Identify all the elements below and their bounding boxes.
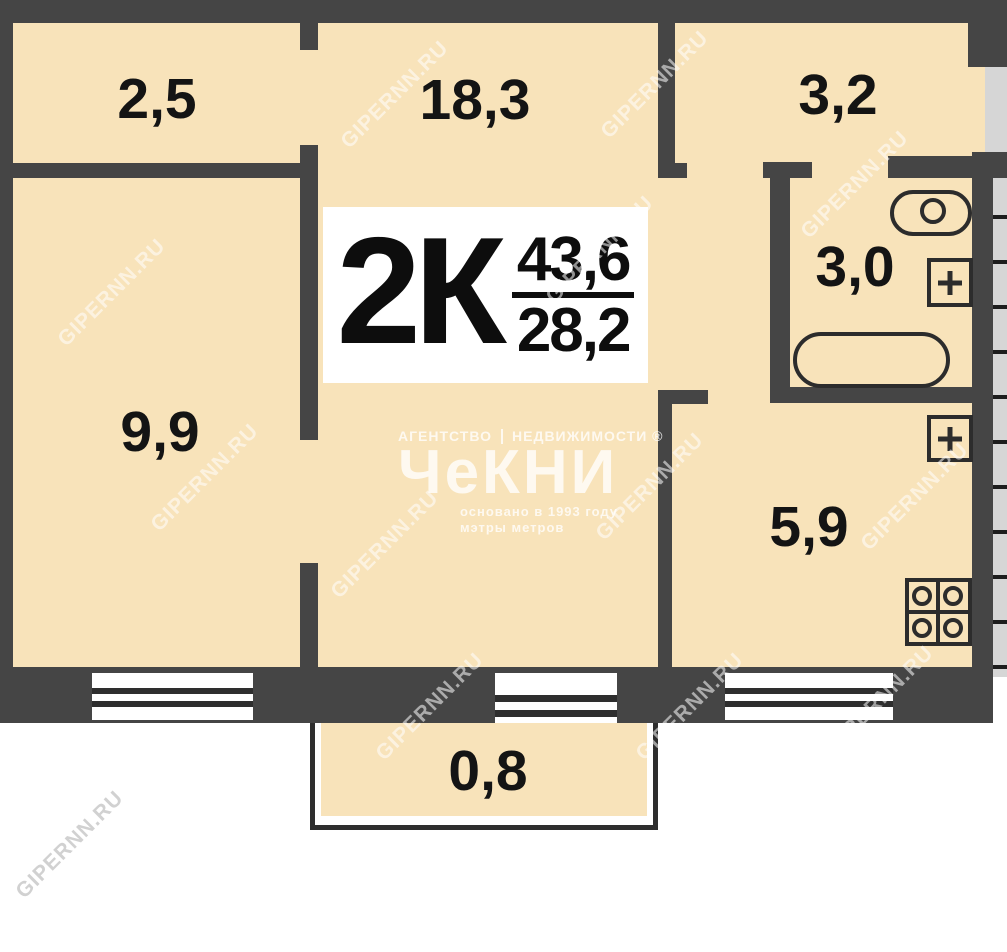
wall-bedroom-living-upper	[300, 145, 318, 440]
stove-icon	[905, 578, 972, 646]
living-area-value: 28,2	[512, 298, 635, 363]
wall-left	[0, 14, 13, 723]
balcony-area-label: 0,8	[448, 738, 527, 804]
storage-area-label: 2,5	[117, 66, 196, 132]
wall-living-hallway-foot	[658, 163, 687, 178]
wall-living-hallway	[658, 23, 675, 178]
agency-slogan-line: мэтры метров	[460, 520, 663, 536]
bedroom-area-label: 9,9	[120, 399, 199, 465]
wall-bathroom-left	[770, 178, 790, 390]
bathroom-area-label: 3,0	[815, 234, 894, 300]
burner-icon	[912, 586, 932, 606]
hallway-area-label: 3,2	[798, 62, 877, 128]
wall-right-block	[972, 152, 1007, 178]
stove-divider	[936, 582, 940, 642]
bathtub-icon	[793, 332, 950, 388]
site-watermark: GIPERNN.RU	[11, 786, 128, 903]
wall-bathroom-bottom	[770, 387, 975, 403]
burner-icon	[943, 618, 963, 638]
window-frame-line	[92, 701, 253, 707]
bathroom-sink-icon	[927, 258, 973, 307]
burner-icon	[943, 586, 963, 606]
window-frame-line	[92, 688, 253, 694]
balcony-door-window	[495, 673, 617, 725]
wall-hallway-bathroom-right	[888, 156, 972, 178]
toilet-icon	[890, 190, 972, 236]
window-frame-line	[495, 695, 617, 702]
floor-plan: 2,5 18,3 3,2 9,9 3,0 5,9 0,8 2К 43,6 28,…	[0, 0, 1007, 952]
toilet-seat-icon	[920, 198, 946, 224]
kitchen-area-label: 5,9	[769, 494, 848, 560]
stair-shaft-hatch	[993, 170, 1007, 677]
wall-storage-bedroom	[13, 163, 318, 178]
living-area-label: 18,3	[420, 67, 531, 133]
wall-corner-top-right	[968, 14, 1007, 67]
burner-icon	[912, 618, 932, 638]
wall-right	[972, 178, 993, 690]
wall-top-inner	[0, 14, 970, 23]
wall-top	[0, 0, 1007, 14]
wall-bedroom-living-lower	[300, 563, 318, 667]
bedroom-window	[92, 673, 253, 720]
entrance-door-gap	[985, 67, 1007, 153]
wall-storage-living-stub	[300, 23, 318, 50]
window-frame-line	[495, 710, 617, 717]
apartment-type-label: 2К	[337, 215, 500, 367]
wall-kitchen-door-stub	[658, 390, 708, 404]
wall-hallway-bathroom-left	[763, 162, 812, 178]
window-frame-line	[725, 688, 893, 694]
